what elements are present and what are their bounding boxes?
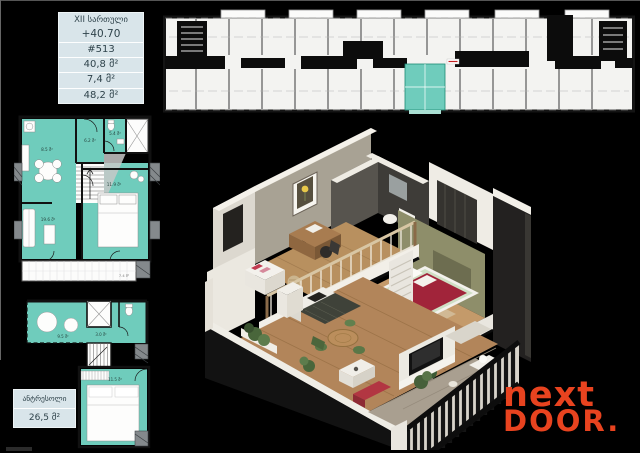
logo-line2: DOOR. [503,410,628,434]
main-floor-plan: 8.5 მ² 6.2 მ² 5.4 მ² 19.6 მ² 11.9 მ² 7.4… [14,109,160,283]
interior-area-label: 40,8 მ² [59,57,143,72]
toilet [383,214,397,224]
dining-chair [345,320,356,327]
open-area-label: 9.5 მ² [57,334,69,339]
balcony-area-label: 7.4 მ² [119,274,130,278]
right-exterior-wall [493,188,531,362]
total-area-label: 48,2 მ² [59,88,143,103]
listing-sheet: XII სართული +40.70 #513 40,8 მ² 7,4 მ² 4… [0,0,640,453]
mezz-shower [87,301,111,327]
balcony-area-label: 7,4 მ² [59,72,143,87]
shower-area-label: 3.0 მ² [95,332,107,337]
hall-area-label: 6.2 მ² [84,138,96,143]
unit-info-panel: XII სართული +40.70 #513 40,8 მ² 7,4 მ² 4… [58,12,144,104]
mezzanine-title: ანტრესოლი [14,390,75,409]
mezzanine-caption: ანტრესოლი 26,5 მ² [13,389,76,428]
balcony-area [22,261,136,281]
frame-line-top [0,0,640,1]
kitchen-area-label: 8.5 მ² [41,147,53,152]
living-area-label: 19.6 მ² [41,217,56,222]
frame-line-left [0,0,1,360]
isometric-render [193,122,538,450]
building-floor-plan [163,7,635,115]
highlighted-unit [405,64,445,114]
shower-area [126,119,148,153]
mezzanine-area: 26,5 მ² [14,409,75,427]
flower-art [302,186,309,193]
unit-number-label: #513 [59,42,143,57]
floor-label: XII სართული [59,13,143,27]
mezz-stairs [87,343,111,367]
dining-table [328,330,358,347]
corridor-entry-marker [447,59,459,64]
elevation-label: +40.70 [59,27,143,41]
nextdoor-logo: next DOOR. [503,381,628,433]
window-wall [207,186,261,342]
corner-annotation [6,447,32,451]
bath-area-label: 5.4 მ² [109,131,121,136]
mezz-bedroom-label: 11.5 მ² [108,377,122,382]
bedroom-area-label: 11.9 მ² [107,182,122,187]
dining-chair [353,346,365,354]
